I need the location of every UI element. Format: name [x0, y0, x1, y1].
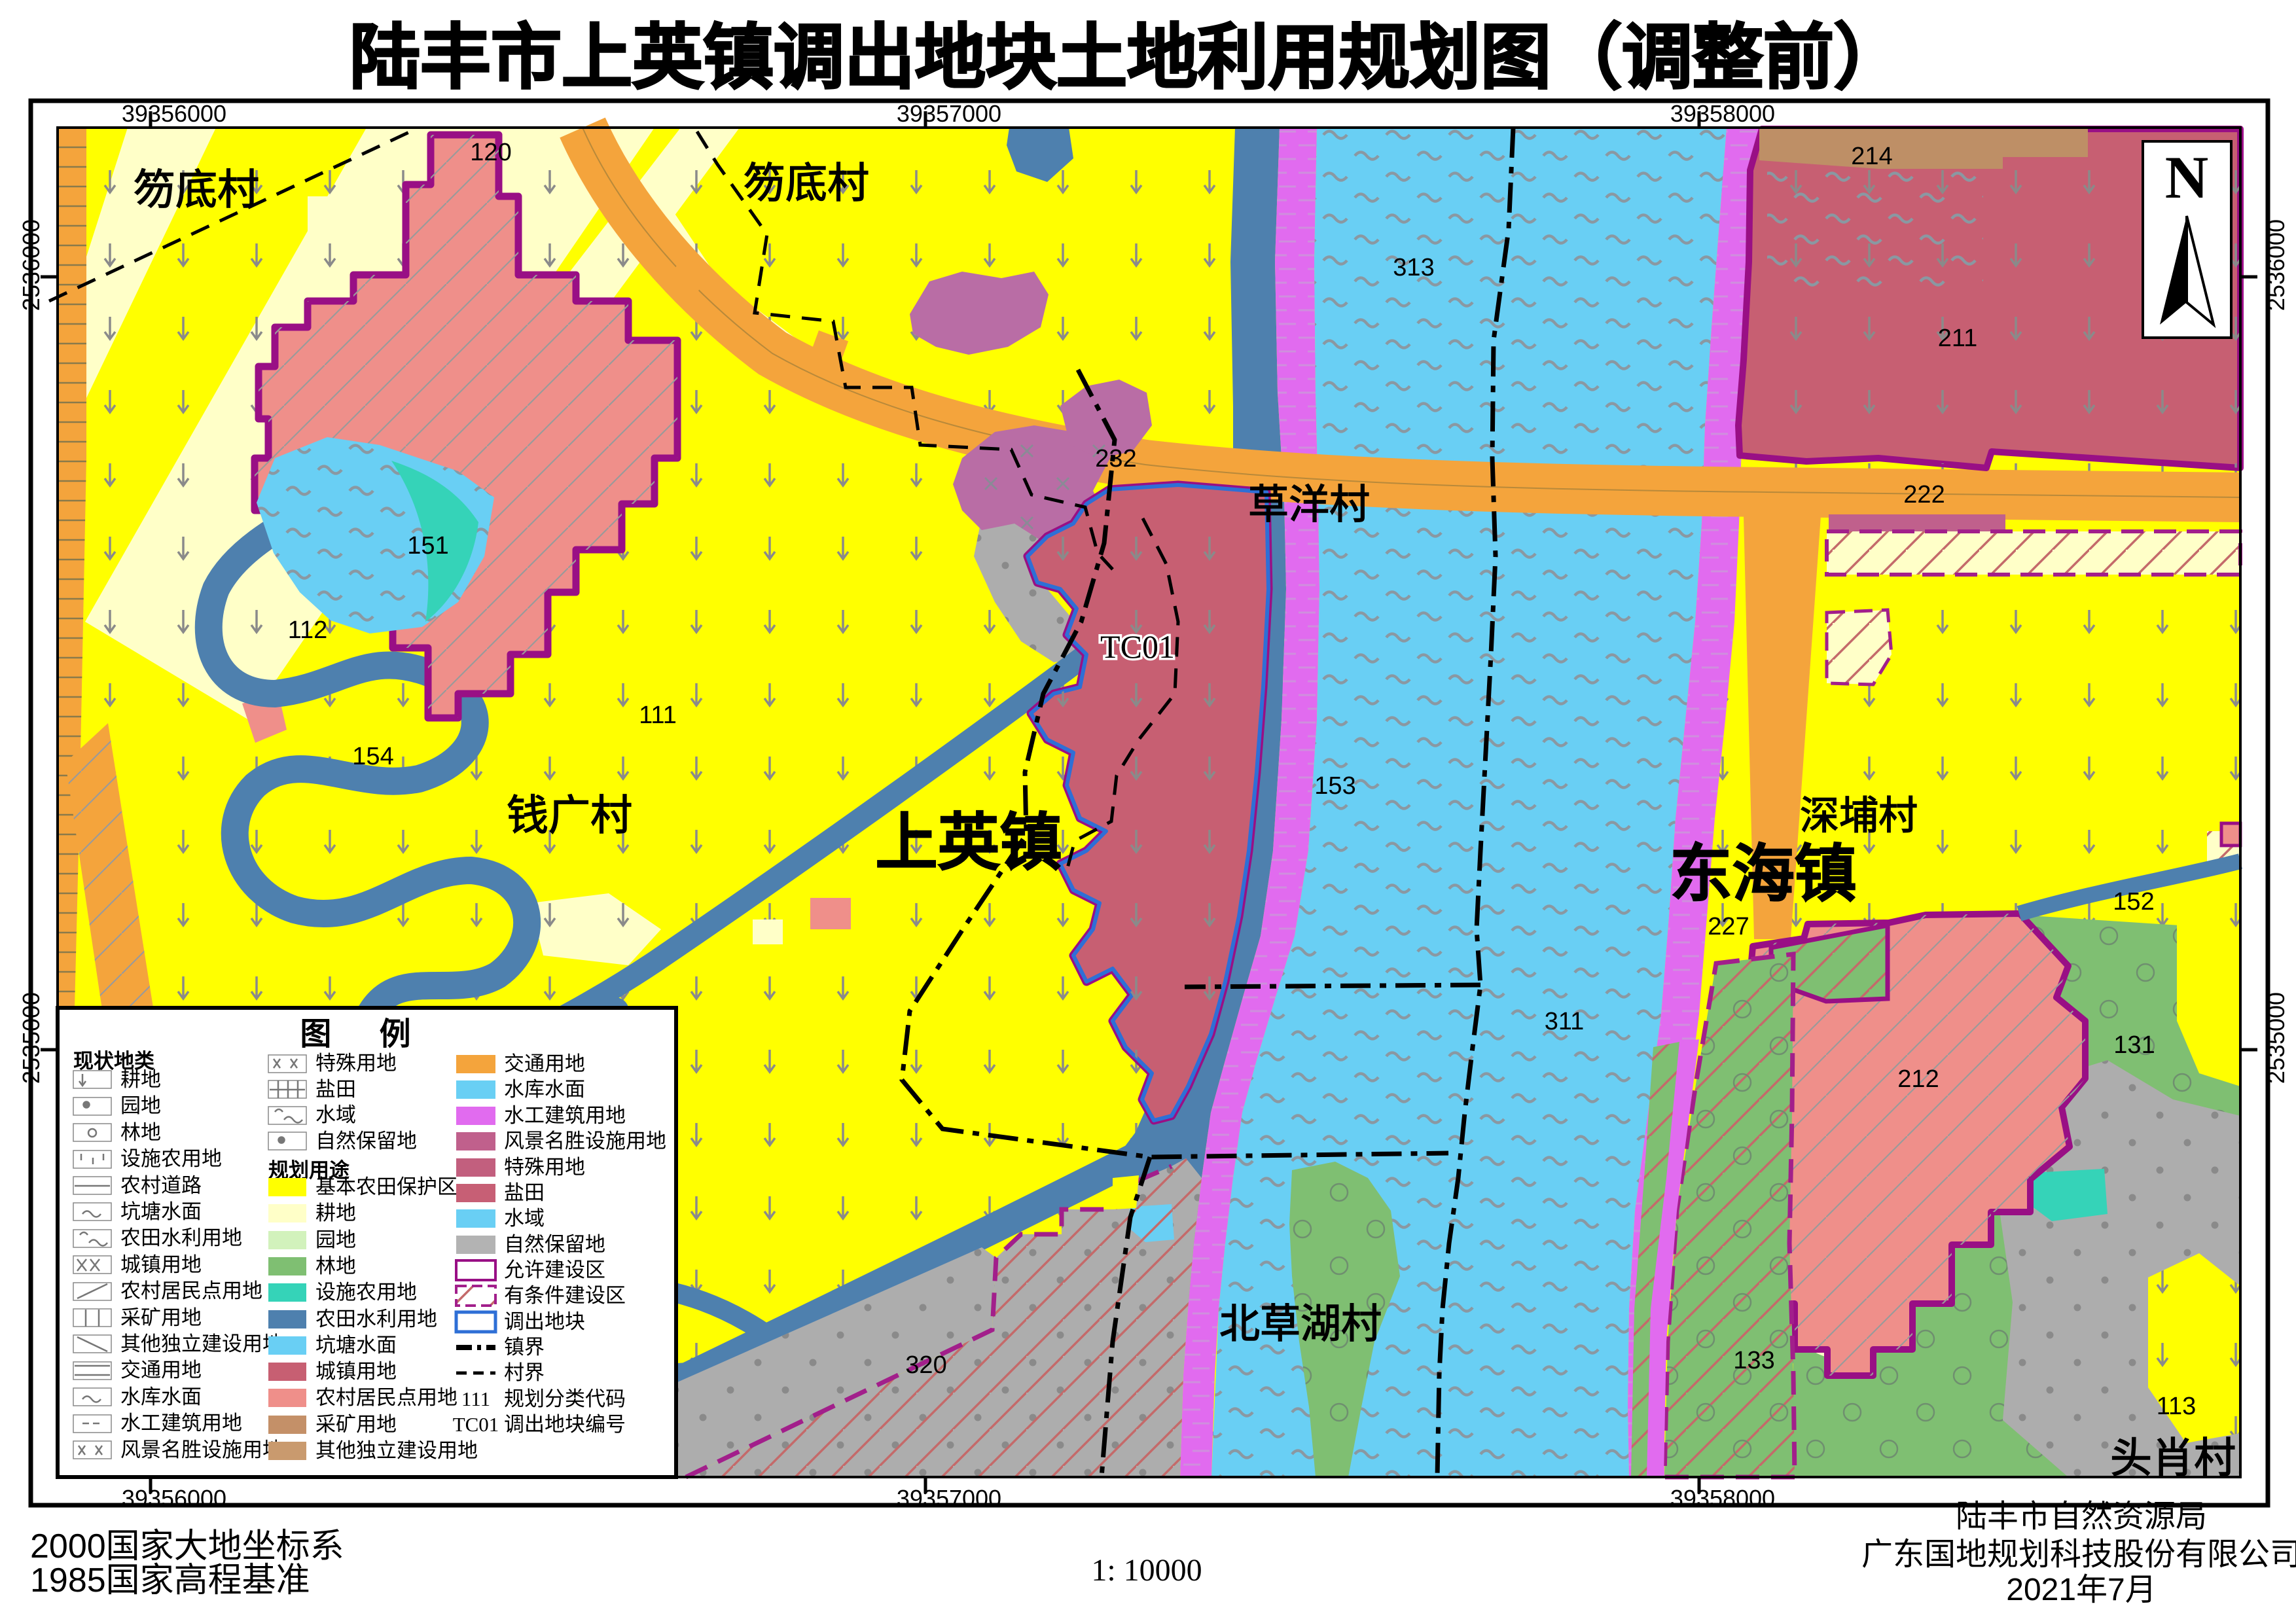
svg-text:采矿用地: 采矿用地: [315, 1413, 397, 1436]
svg-text:水域: 水域: [315, 1103, 356, 1126]
svg-text:盐田: 盐田: [504, 1181, 545, 1204]
svg-text:39357000: 39357000: [897, 1485, 1001, 1512]
svg-text:113: 113: [2157, 1393, 2197, 1420]
svg-text:39356000: 39356000: [122, 1485, 226, 1512]
svg-text:39357000: 39357000: [897, 100, 1001, 127]
svg-text:水库水面: 水库水面: [504, 1078, 585, 1101]
svg-text:林地: 林地: [120, 1121, 161, 1144]
svg-text:北草湖村: 北草湖村: [1219, 1302, 1382, 1347]
svg-text:211: 211: [1938, 325, 1978, 352]
svg-text:154: 154: [352, 743, 393, 770]
svg-text:耕地: 耕地: [315, 1202, 356, 1224]
svg-text:设施农用地: 设施农用地: [315, 1281, 417, 1304]
svg-text:农田水利用地: 农田水利用地: [315, 1308, 437, 1330]
svg-text:笏底村: 笏底村: [744, 160, 869, 207]
svg-text:2535000: 2535000: [18, 992, 45, 1084]
svg-text:陆丰市自然资源局: 陆丰市自然资源局: [1956, 1499, 2207, 1534]
svg-text:水工建筑用地: 水工建筑用地: [504, 1104, 626, 1127]
svg-text:313: 313: [1393, 254, 1434, 281]
svg-text:耕地: 耕地: [120, 1068, 161, 1091]
svg-text:农村居民点用地: 农村居民点用地: [120, 1279, 262, 1302]
svg-text:其他独立建设用地: 其他独立建设用地: [315, 1439, 478, 1462]
svg-text:111: 111: [461, 1387, 490, 1410]
svg-text:水工建筑用地: 水工建筑用地: [120, 1412, 242, 1435]
svg-text:112: 112: [288, 616, 328, 644]
svg-text:111: 111: [639, 702, 677, 729]
svg-text:上英镇: 上英镇: [875, 808, 1062, 878]
svg-text:交通用地: 交通用地: [120, 1359, 202, 1382]
svg-text:有条件建设区: 有条件建设区: [504, 1284, 626, 1307]
svg-text:风景名胜设施用地: 风景名胜设施用地: [120, 1438, 283, 1461]
svg-text:林地: 林地: [315, 1255, 356, 1277]
svg-text:2000国家大地坐标系: 2000国家大地坐标系: [30, 1527, 344, 1565]
svg-text:城镇用地: 城镇用地: [120, 1253, 202, 1276]
svg-text:2536000: 2536000: [2263, 219, 2289, 311]
svg-text:城镇用地: 城镇用地: [315, 1360, 397, 1383]
svg-text:图 例: 图 例: [300, 1017, 430, 1052]
svg-text:227: 227: [1708, 913, 1749, 940]
svg-text:311: 311: [1545, 1008, 1585, 1035]
svg-text:设施农用地: 设施农用地: [120, 1147, 222, 1170]
svg-text:允许建设区: 允许建设区: [504, 1258, 605, 1281]
svg-text:农田水利用地: 农田水利用地: [120, 1226, 242, 1249]
svg-text:坑塘水面: 坑塘水面: [120, 1200, 202, 1223]
svg-text:自然保留地: 自然保留地: [504, 1233, 605, 1256]
svg-text:212: 212: [1897, 1065, 1939, 1093]
svg-text:1985国家高程基准: 1985国家高程基准: [30, 1561, 310, 1599]
svg-text:园地: 园地: [315, 1228, 356, 1251]
svg-text:N: N: [2165, 144, 2208, 211]
svg-text:东海镇: 东海镇: [1670, 840, 1856, 909]
svg-text:222: 222: [1903, 481, 1945, 508]
svg-text:2536000: 2536000: [18, 219, 45, 311]
svg-text:TC01: TC01: [453, 1413, 499, 1436]
svg-text:特殊用地: 特殊用地: [504, 1156, 585, 1179]
svg-text:320: 320: [905, 1351, 946, 1379]
svg-text:陆丰市上英镇调出地块土地利用规划图（调整前）: 陆丰市上英镇调出地块土地利用规划图（调整前）: [350, 18, 1905, 97]
svg-text:2535000: 2535000: [2263, 992, 2289, 1084]
svg-text:2021年7月: 2021年7月: [2006, 1573, 2156, 1607]
svg-text:151: 151: [407, 532, 448, 560]
svg-text:盐田: 盐田: [315, 1078, 356, 1101]
svg-text:153: 153: [1314, 772, 1355, 800]
svg-text:草洋村: 草洋村: [1248, 482, 1370, 527]
svg-text:深埔村: 深埔村: [1800, 794, 1918, 838]
svg-text:131: 131: [2113, 1031, 2155, 1059]
svg-text:1: 10000: 1: 10000: [1091, 1553, 1202, 1588]
svg-text:39358000: 39358000: [1670, 100, 1775, 127]
svg-text:园地: 园地: [120, 1094, 161, 1117]
svg-text:农村道路: 农村道路: [120, 1174, 202, 1197]
svg-text:39356000: 39356000: [122, 100, 226, 127]
svg-text:133: 133: [1733, 1347, 1774, 1374]
svg-text:152: 152: [2113, 888, 2154, 916]
svg-text:214: 214: [1851, 143, 1892, 170]
svg-text:39358000: 39358000: [1670, 1485, 1775, 1512]
svg-text:村界: 村界: [504, 1361, 545, 1384]
svg-text:采矿用地: 采矿用地: [120, 1306, 202, 1329]
svg-text:基本农田保护区: 基本农田保护区: [315, 1175, 457, 1198]
svg-text:交通用地: 交通用地: [504, 1052, 585, 1075]
svg-text:农村居民点用地: 农村居民点用地: [315, 1386, 457, 1409]
svg-text:232: 232: [1095, 445, 1136, 473]
svg-text:笏底村: 笏底村: [134, 166, 259, 213]
svg-text:风景名胜设施用地: 风景名胜设施用地: [504, 1130, 666, 1152]
svg-text:规划分类代码: 规划分类代码: [504, 1387, 626, 1410]
svg-text:调出地块: 调出地块: [504, 1310, 585, 1333]
svg-text:其他独立建设用地: 其他独立建设用地: [120, 1332, 283, 1355]
svg-text:广东国地规划科技股份有限公司: 广东国地规划科技股份有限公司: [1861, 1537, 2296, 1572]
svg-text:钱广村: 钱广村: [507, 792, 632, 839]
svg-text:镇界: 镇界: [504, 1336, 545, 1359]
svg-text:特殊用地: 特殊用地: [315, 1052, 397, 1075]
svg-text:120: 120: [470, 139, 511, 166]
svg-text:调出地块编号: 调出地块编号: [504, 1413, 626, 1436]
svg-text:水域: 水域: [504, 1207, 545, 1230]
svg-text:自然保留地: 自然保留地: [315, 1130, 417, 1152]
svg-text:头肖村: 头肖村: [2110, 1435, 2236, 1482]
svg-text:坑塘水面: 坑塘水面: [315, 1334, 397, 1357]
svg-text:TC01: TC01: [1100, 628, 1175, 665]
svg-text:水库水面: 水库水面: [120, 1385, 202, 1408]
